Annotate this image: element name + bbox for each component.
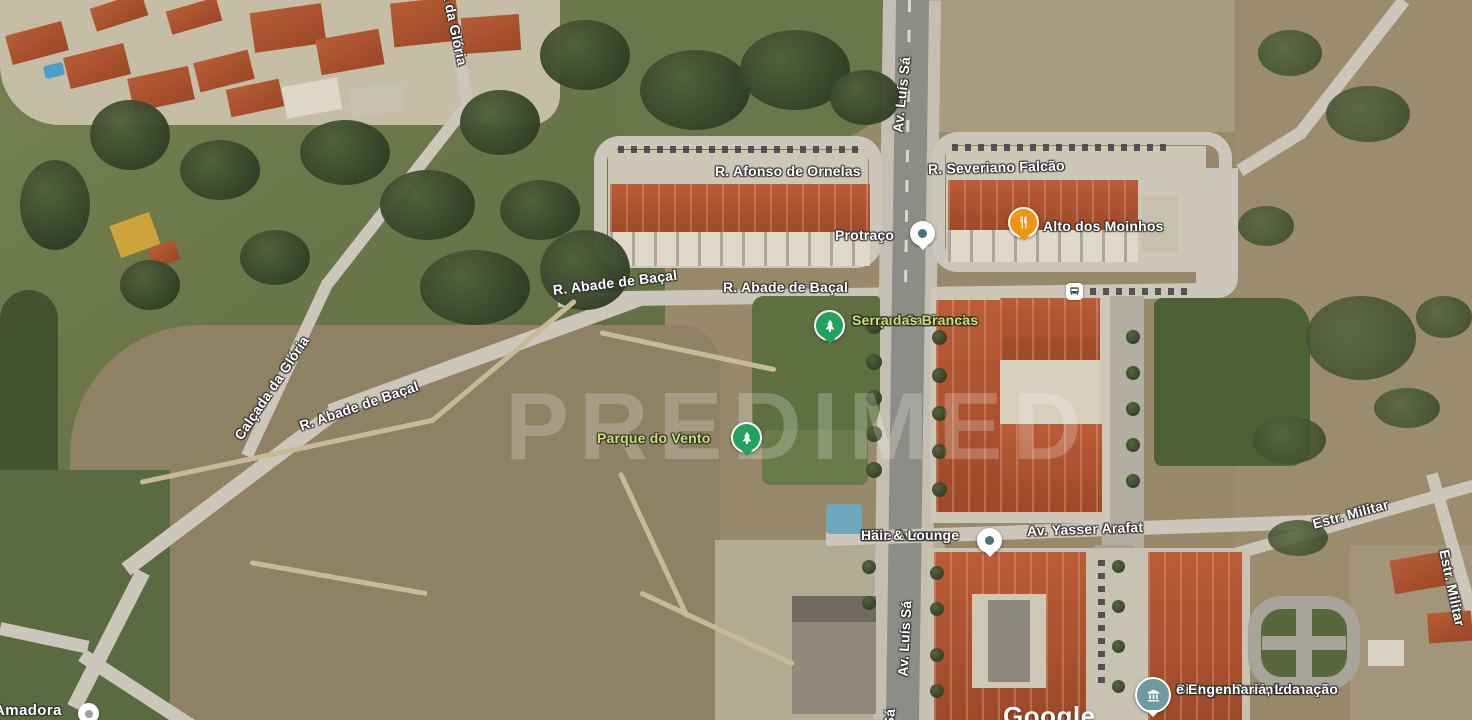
street-tree	[866, 354, 882, 370]
building-a-terrace	[610, 232, 870, 266]
parked-cars-row	[952, 144, 1172, 151]
poi-label-protraco[interactable]: Protraço	[835, 227, 894, 244]
street-tree	[1126, 474, 1140, 488]
tree-cluster	[180, 140, 260, 200]
bus-icon	[1069, 286, 1080, 297]
tree-cluster	[300, 120, 390, 185]
parked-cars-row	[1090, 288, 1190, 295]
tree-cluster	[240, 230, 310, 285]
street-label-afonso-de-ornelas: R. Afonso de Ornelas	[715, 163, 861, 180]
bush	[1416, 296, 1472, 338]
tree-cluster	[20, 160, 90, 250]
satellite-map-canvas[interactable]: PREDIMED R. Afonso de Ornelas R. Severia…	[0, 0, 1472, 720]
tree-cluster	[830, 70, 900, 125]
tree-cluster	[380, 170, 475, 240]
park-tree-pin-icon-vento[interactable]	[731, 422, 762, 453]
park-tree-pin-icon-canino[interactable]	[814, 310, 845, 341]
street-tree	[1112, 680, 1125, 693]
poi-label-alto-dos-moinhos[interactable]: Alto dos Moinhos	[1043, 218, 1164, 235]
tree-icon	[822, 318, 838, 334]
street-tree	[932, 482, 947, 497]
google-logo[interactable]: Google	[1003, 701, 1096, 720]
bus-stop-icon[interactable]	[1066, 283, 1083, 300]
street-tree	[1126, 330, 1140, 344]
street-tree	[1112, 600, 1125, 613]
street-tree	[930, 648, 944, 662]
bush	[1258, 30, 1322, 76]
poi-label-parque-do-vento[interactable]: Parque do Vento	[597, 430, 710, 447]
street-tree	[862, 560, 876, 574]
street-tree	[1126, 402, 1140, 416]
street-tree	[1126, 366, 1140, 380]
tree-cluster	[640, 50, 750, 130]
bush	[1326, 86, 1410, 142]
street-tree	[1112, 640, 1125, 653]
bush	[1374, 388, 1440, 428]
bush	[1252, 416, 1326, 464]
building-c-north-wing	[1000, 298, 1100, 360]
parked-cars-column	[1098, 560, 1105, 690]
utensils-icon	[1016, 215, 1031, 230]
city-dot-icon-amadora[interactable]	[78, 703, 99, 720]
tree-icon	[739, 430, 755, 446]
street-label-severiano-falcao: R. Severiano Falcão	[928, 157, 1065, 178]
street-tree	[930, 602, 944, 616]
tree-cluster	[120, 260, 180, 310]
street-tree	[932, 330, 947, 345]
plaza-cross-horizontal	[1262, 636, 1346, 650]
street-label-abade-de-bacal-2: R. Abade de Baçal	[723, 279, 848, 296]
restaurant-pin-icon-alto-dos-moinhos[interactable]	[1008, 207, 1039, 238]
tree-cluster	[90, 100, 170, 170]
street-tree	[930, 566, 944, 580]
house	[461, 14, 521, 54]
courtyard-d-structure	[988, 600, 1030, 682]
bush	[1306, 296, 1416, 380]
street-tree	[862, 596, 876, 610]
building-pin-icon-sistopo[interactable]	[1135, 677, 1171, 713]
bush	[1238, 206, 1294, 246]
building-columns-icon	[1145, 687, 1162, 704]
city-label-amadora[interactable]: Amadora	[0, 702, 62, 720]
tree-cluster	[460, 90, 540, 155]
playground	[826, 504, 862, 534]
building-a-roof	[610, 184, 870, 232]
tree-cluster	[540, 20, 630, 90]
poi-marker-protraco-dot-icon[interactable]	[910, 221, 935, 246]
building-se-3	[1368, 640, 1404, 666]
poi-marker-elite-dot-icon[interactable]	[977, 528, 1002, 553]
street-tree	[930, 684, 944, 698]
terrain-dirt-lot-top	[935, 0, 1235, 132]
tree-cluster	[500, 180, 580, 240]
street-tree	[1126, 438, 1140, 452]
predimed-watermark: PREDIMED	[505, 372, 1092, 482]
parked-cars-row	[618, 146, 858, 153]
tree-cluster	[420, 250, 530, 325]
street-tree	[1112, 560, 1125, 573]
